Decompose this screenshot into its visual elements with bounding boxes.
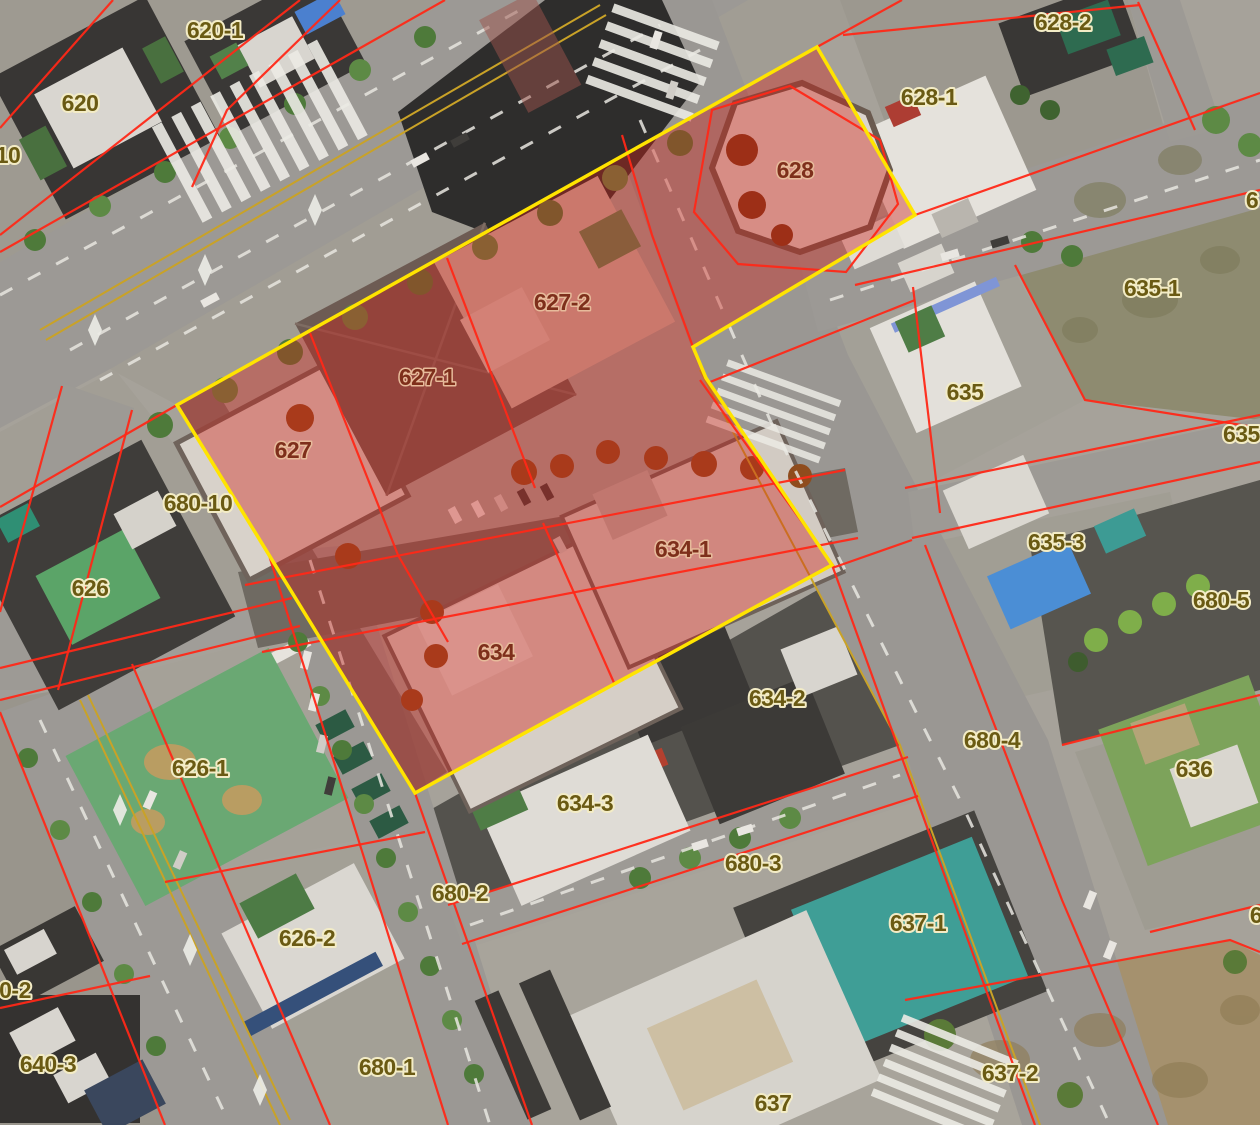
parcel-label-634: 634	[478, 639, 516, 665]
parcel-label-10: 10	[0, 142, 20, 168]
parcel-label-637-1: 637-1	[890, 910, 947, 936]
parcel-label-634-2: 634-2	[749, 685, 805, 711]
parcel-label-636: 636	[1176, 756, 1213, 782]
parcel-label-620-1: 620-1	[187, 17, 244, 43]
parcel-label-620: 620	[62, 90, 99, 116]
parcel-label-637-2: 637-2	[982, 1060, 1038, 1086]
parcel-label-635-: 635-	[1223, 421, 1260, 447]
parcel-label-628: 628	[777, 157, 815, 183]
parcel-label-627-1: 627-1	[399, 364, 456, 390]
parcel-label-6: 6	[1250, 902, 1260, 928]
parcel-label-635-1: 635-1	[1124, 275, 1181, 301]
parcel-label-626: 626	[72, 575, 109, 601]
aerial-cadastral-map[interactable]: 620-162010628-2628-16628635-1627-2627-16…	[0, 0, 1260, 1125]
parcel-label-6: 6	[1246, 187, 1258, 213]
map-viewport[interactable]: 620-162010628-2628-16628635-1627-2627-16…	[0, 0, 1260, 1125]
parcel-label-680-1: 680-1	[359, 1054, 416, 1080]
parcel-label-626-1: 626-1	[172, 755, 229, 781]
parcel-label-634-1: 634-1	[655, 536, 712, 562]
parcel-label-627-2: 627-2	[534, 289, 590, 315]
parcel-label-626-2: 626-2	[279, 925, 335, 951]
parcel-label-680-10: 680-10	[164, 490, 233, 516]
parcel-label-637: 637	[755, 1090, 792, 1116]
parcel-label-635: 635	[947, 379, 985, 405]
parcel-label-628-1: 628-1	[901, 84, 958, 110]
parcel-label-680-2: 680-2	[432, 880, 488, 906]
parcel-label-0-2: 0-2	[0, 977, 31, 1003]
parcel-label-634-3: 634-3	[557, 790, 613, 816]
parcel-label-627: 627	[275, 437, 312, 463]
parcel-label-680-5: 680-5	[1193, 587, 1250, 613]
parcel-label-635-3: 635-3	[1028, 529, 1084, 555]
parcel-label-640-3: 640-3	[20, 1051, 76, 1077]
parcel-label-628-2: 628-2	[1035, 9, 1091, 35]
parcel-label-680-4: 680-4	[964, 727, 1021, 753]
parcel-label-680-3: 680-3	[725, 850, 781, 876]
